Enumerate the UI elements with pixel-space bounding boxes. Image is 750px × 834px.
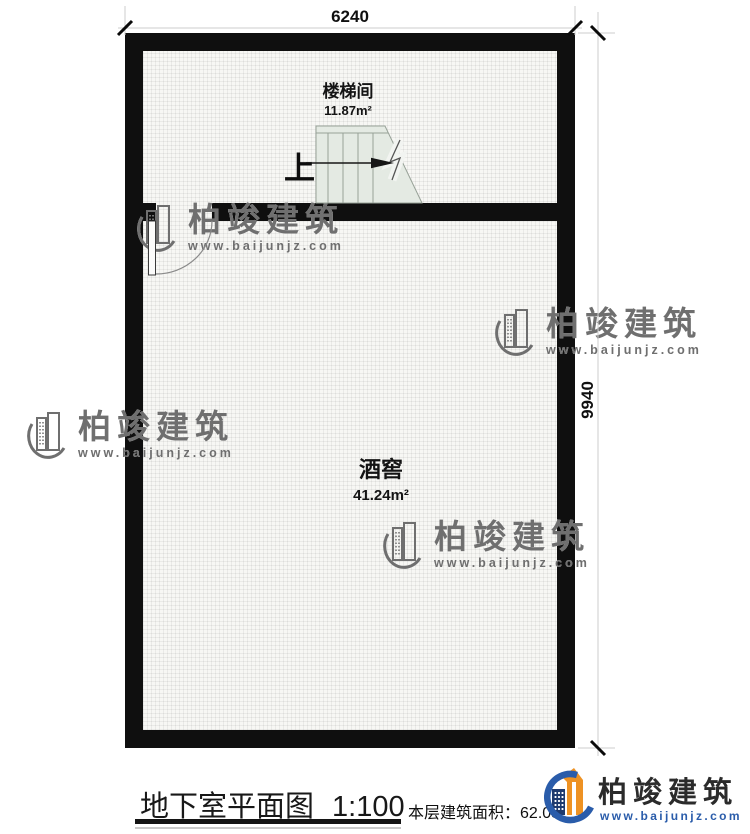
brand-logo-icon <box>536 765 596 829</box>
room-area: 41.24m² <box>311 487 451 504</box>
brand-name: 柏竣建筑 <box>598 769 738 811</box>
title-rule-thick <box>135 819 401 824</box>
stair-up-label: 上 <box>284 143 315 188</box>
watermark-building-icon <box>22 408 68 462</box>
dimension-width: 6240 <box>125 7 575 27</box>
dimension-height: 9940 <box>574 368 602 432</box>
watermark-building-icon <box>22 408 68 462</box>
brand-url: www.baijunjz.com <box>600 809 742 823</box>
title-rule-thin <box>135 827 401 829</box>
floor-area-label: 本层建筑面积： <box>408 805 520 822</box>
room-name: 酒窖 <box>311 452 451 484</box>
room-label-stairwell: 楼梯间 11.87m² <box>278 77 418 118</box>
room-name: 楼梯间 <box>278 77 418 102</box>
interior-wall <box>212 203 557 221</box>
room-label-wine-cellar: 酒窖 41.24m² <box>311 452 451 504</box>
outer-wall <box>125 33 575 748</box>
brand-logo: 柏竣建筑 www.baijunjz.com <box>536 765 750 831</box>
interior-wall-stub <box>143 203 156 221</box>
room-area: 11.87m² <box>278 103 418 118</box>
